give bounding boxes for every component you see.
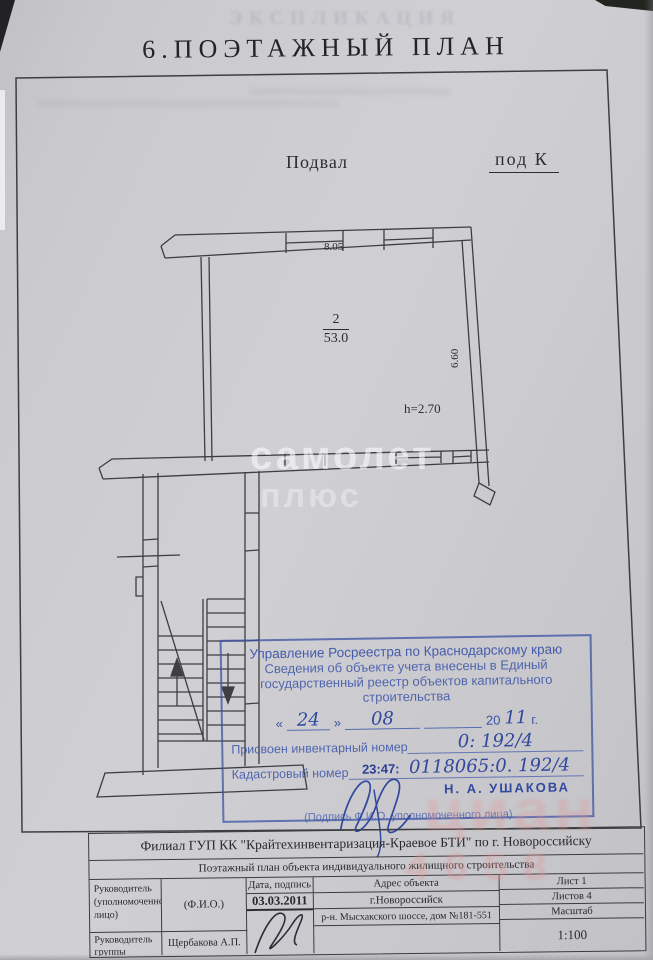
scale-value-cell: 1:100 (500, 918, 644, 951)
role2-cell: Руководитель группы (90, 932, 162, 956)
inventory-value: 0: 192/4 (458, 730, 533, 752)
dimension-right: 6.60 (449, 349, 461, 368)
stamp-year-suffix: г. (531, 712, 538, 727)
watermark-pink-number: 4658 (405, 845, 562, 888)
watermark-line1: самолет (250, 436, 435, 476)
room-area: 53.0 (312, 331, 360, 347)
ceiling-height-note: h=2.70 (404, 401, 441, 417)
role1-cell: Руководитель (уполномоченное лицо) (90, 879, 163, 933)
dimension-top: 8.05 (324, 241, 343, 253)
table-signature (243, 901, 323, 959)
stamp-date-month: 08 (345, 710, 420, 730)
quote-open: « (276, 716, 283, 731)
watermark-line2: плюс (260, 479, 435, 513)
fio-value-cell: Щербакова А.П. (162, 931, 247, 955)
room-top-wall (161, 227, 471, 258)
room-left-wall (201, 257, 212, 461)
floor-label: Подвал (286, 152, 348, 173)
date-blank-line (424, 713, 482, 729)
watermark-samolet-plus: самолет плюс (250, 436, 435, 513)
scale-label-cell: Масштаб (500, 903, 644, 920)
room-number: 2 (312, 312, 360, 328)
corridor-left-wall (117, 473, 180, 775)
liter-label: под К (489, 149, 559, 173)
date-header-cell: Дата, подпись (247, 877, 314, 894)
stamp-year-printed: 20 (486, 713, 501, 728)
stamp-date-row: « 24 » 08 20 11 г. (231, 704, 583, 732)
quote-close: » (334, 715, 341, 730)
stamp-date-day: 24 (287, 711, 330, 731)
title-block-table: Филиал ГУП КК "Крайтехинвентаризация-Кра… (88, 826, 646, 958)
fraction-line (323, 329, 349, 330)
stamp-year-hand: 11 (504, 709, 527, 727)
address-empty-cell (314, 924, 500, 953)
room-number-area: 2 53.0 (312, 312, 360, 347)
watermark-pink-text: циан (424, 778, 653, 843)
sheets-total-cell: Листов 4 (500, 888, 644, 905)
fio-header-cell: (Ф.И.О.) (162, 878, 248, 932)
scanned-floor-plan-page: ЭКСПЛИКАЦИЯ 6.ПОЭТАЖНЫЙ ПЛАН (0, 0, 653, 960)
